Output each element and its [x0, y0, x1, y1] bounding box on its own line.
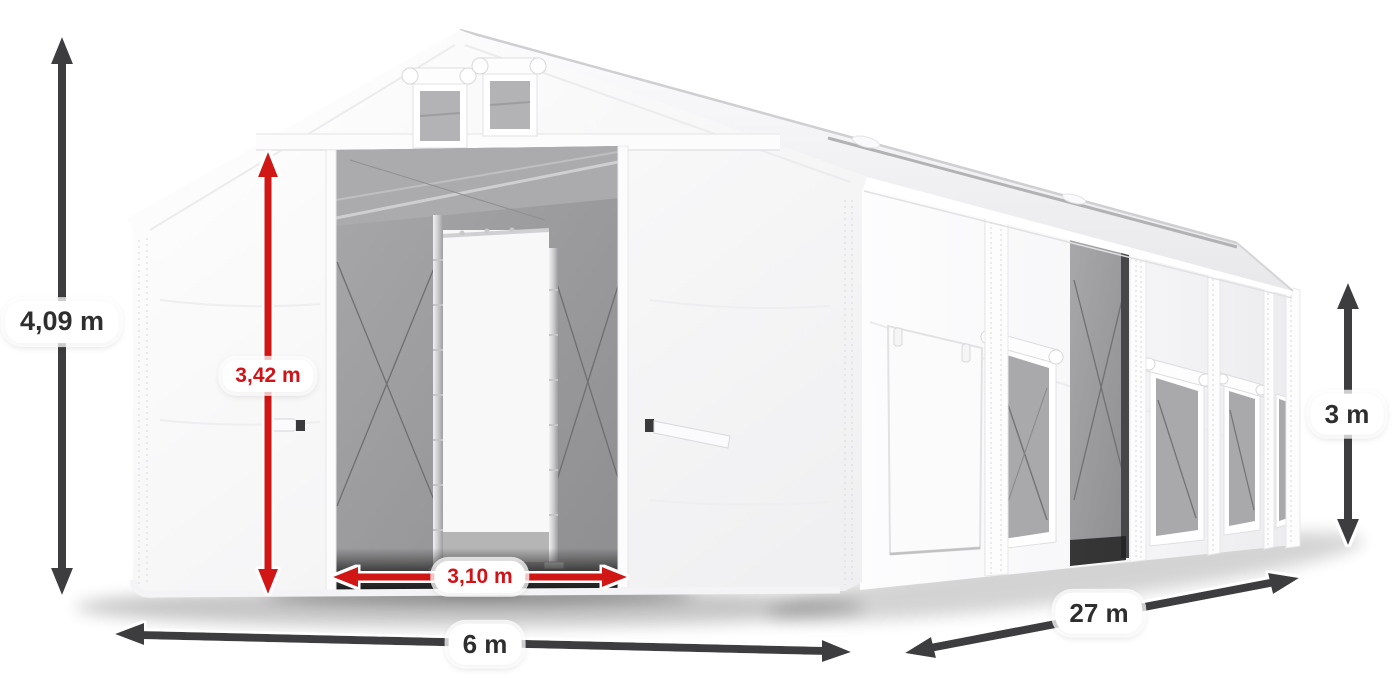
dimension-label-length: 27 m: [1055, 593, 1142, 634]
gable-vent-right: [472, 58, 546, 136]
dimension-label-clear-height: 3,42 m: [222, 360, 313, 392]
tent-drawing: [0, 0, 1400, 700]
side-window: [1143, 358, 1211, 546]
door-strap: [894, 328, 902, 346]
door-latch-clip: [645, 419, 654, 432]
door-latch: [272, 419, 296, 431]
dimension-label-entrance-width: 3,10 m: [434, 561, 525, 593]
side-window: [1218, 373, 1266, 535]
tent-dimensions-illustration: 4,09 m 3,42 m 3,10 m 6 m 27 m 3 m: [0, 0, 1400, 700]
gable-vent-left: [402, 68, 476, 148]
side-open-doorway: [1070, 238, 1129, 566]
door-strap: [962, 344, 970, 362]
side-door-panel: [888, 326, 982, 554]
see-through-gap: [441, 228, 549, 563]
opening-frame-right: [618, 146, 628, 588]
dimension-label-side-height: 3 m: [1311, 394, 1384, 435]
front-opening: [333, 146, 621, 590]
door-latch-clip: [296, 420, 305, 431]
opening-frame-left: [326, 150, 336, 590]
dimension-label-width: 6 m: [449, 624, 522, 665]
dimension-label-total-height: 4,09 m: [5, 301, 119, 343]
